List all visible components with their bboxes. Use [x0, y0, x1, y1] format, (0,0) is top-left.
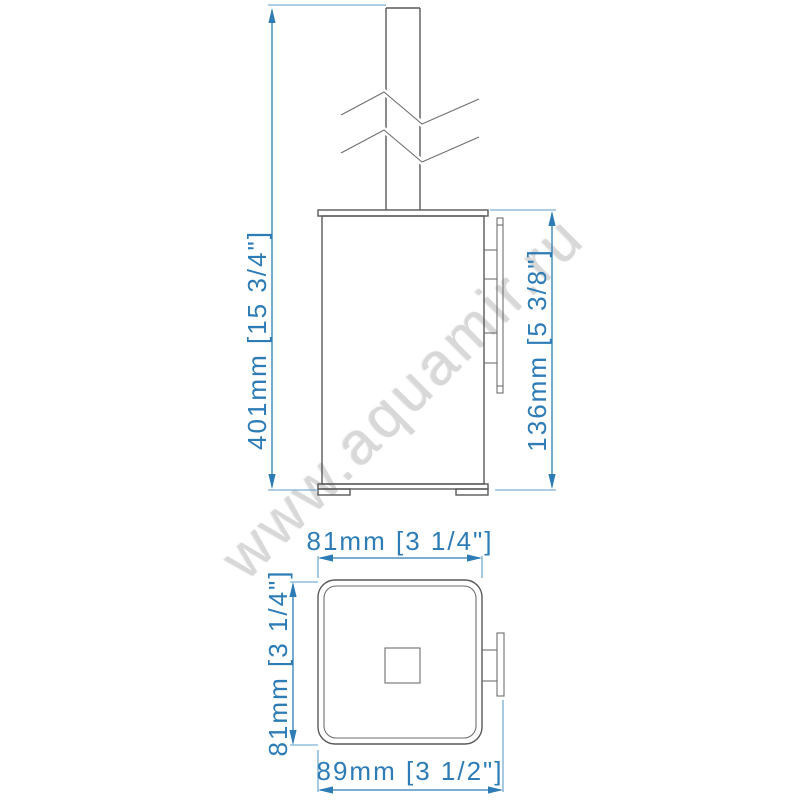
front-view — [318, 8, 503, 495]
break-lines-icon — [341, 92, 479, 162]
dim-depth-label: 81mm [3 1/4"] — [263, 570, 293, 757]
technical-drawing: 401mm [15 3/4"] 136mm [5 3/8"] — [0, 0, 800, 800]
dim-total-height-label: 401mm [15 3/4"] — [242, 230, 272, 450]
dimension-total-depth: 89mm [3 1/2"] — [317, 700, 504, 794]
dimension-width-top: 81mm [3 1/4"] — [307, 526, 494, 578]
wall-mount-bracket-side — [484, 218, 503, 393]
dimension-depth-left: 81mm [3 1/4"] — [263, 570, 318, 757]
handle-hole — [385, 648, 420, 683]
holder-outline-top — [318, 580, 482, 744]
dim-total-depth-label: 89mm [3 1/2"] — [317, 756, 504, 786]
dim-width-label: 81mm [3 1/4"] — [307, 526, 494, 556]
dimension-total-height: 401mm [15 3/4"] — [242, 5, 386, 490]
wall-mount-bracket-top — [482, 633, 504, 696]
dim-holder-height-label: 136mm [5 3/8"] — [522, 248, 552, 451]
dimension-holder-height: 136mm [5 3/8"] — [490, 210, 556, 490]
technical-drawing-page: www.aquamir.ru — [0, 0, 800, 800]
top-view — [318, 580, 504, 744]
holder-body — [318, 210, 488, 495]
